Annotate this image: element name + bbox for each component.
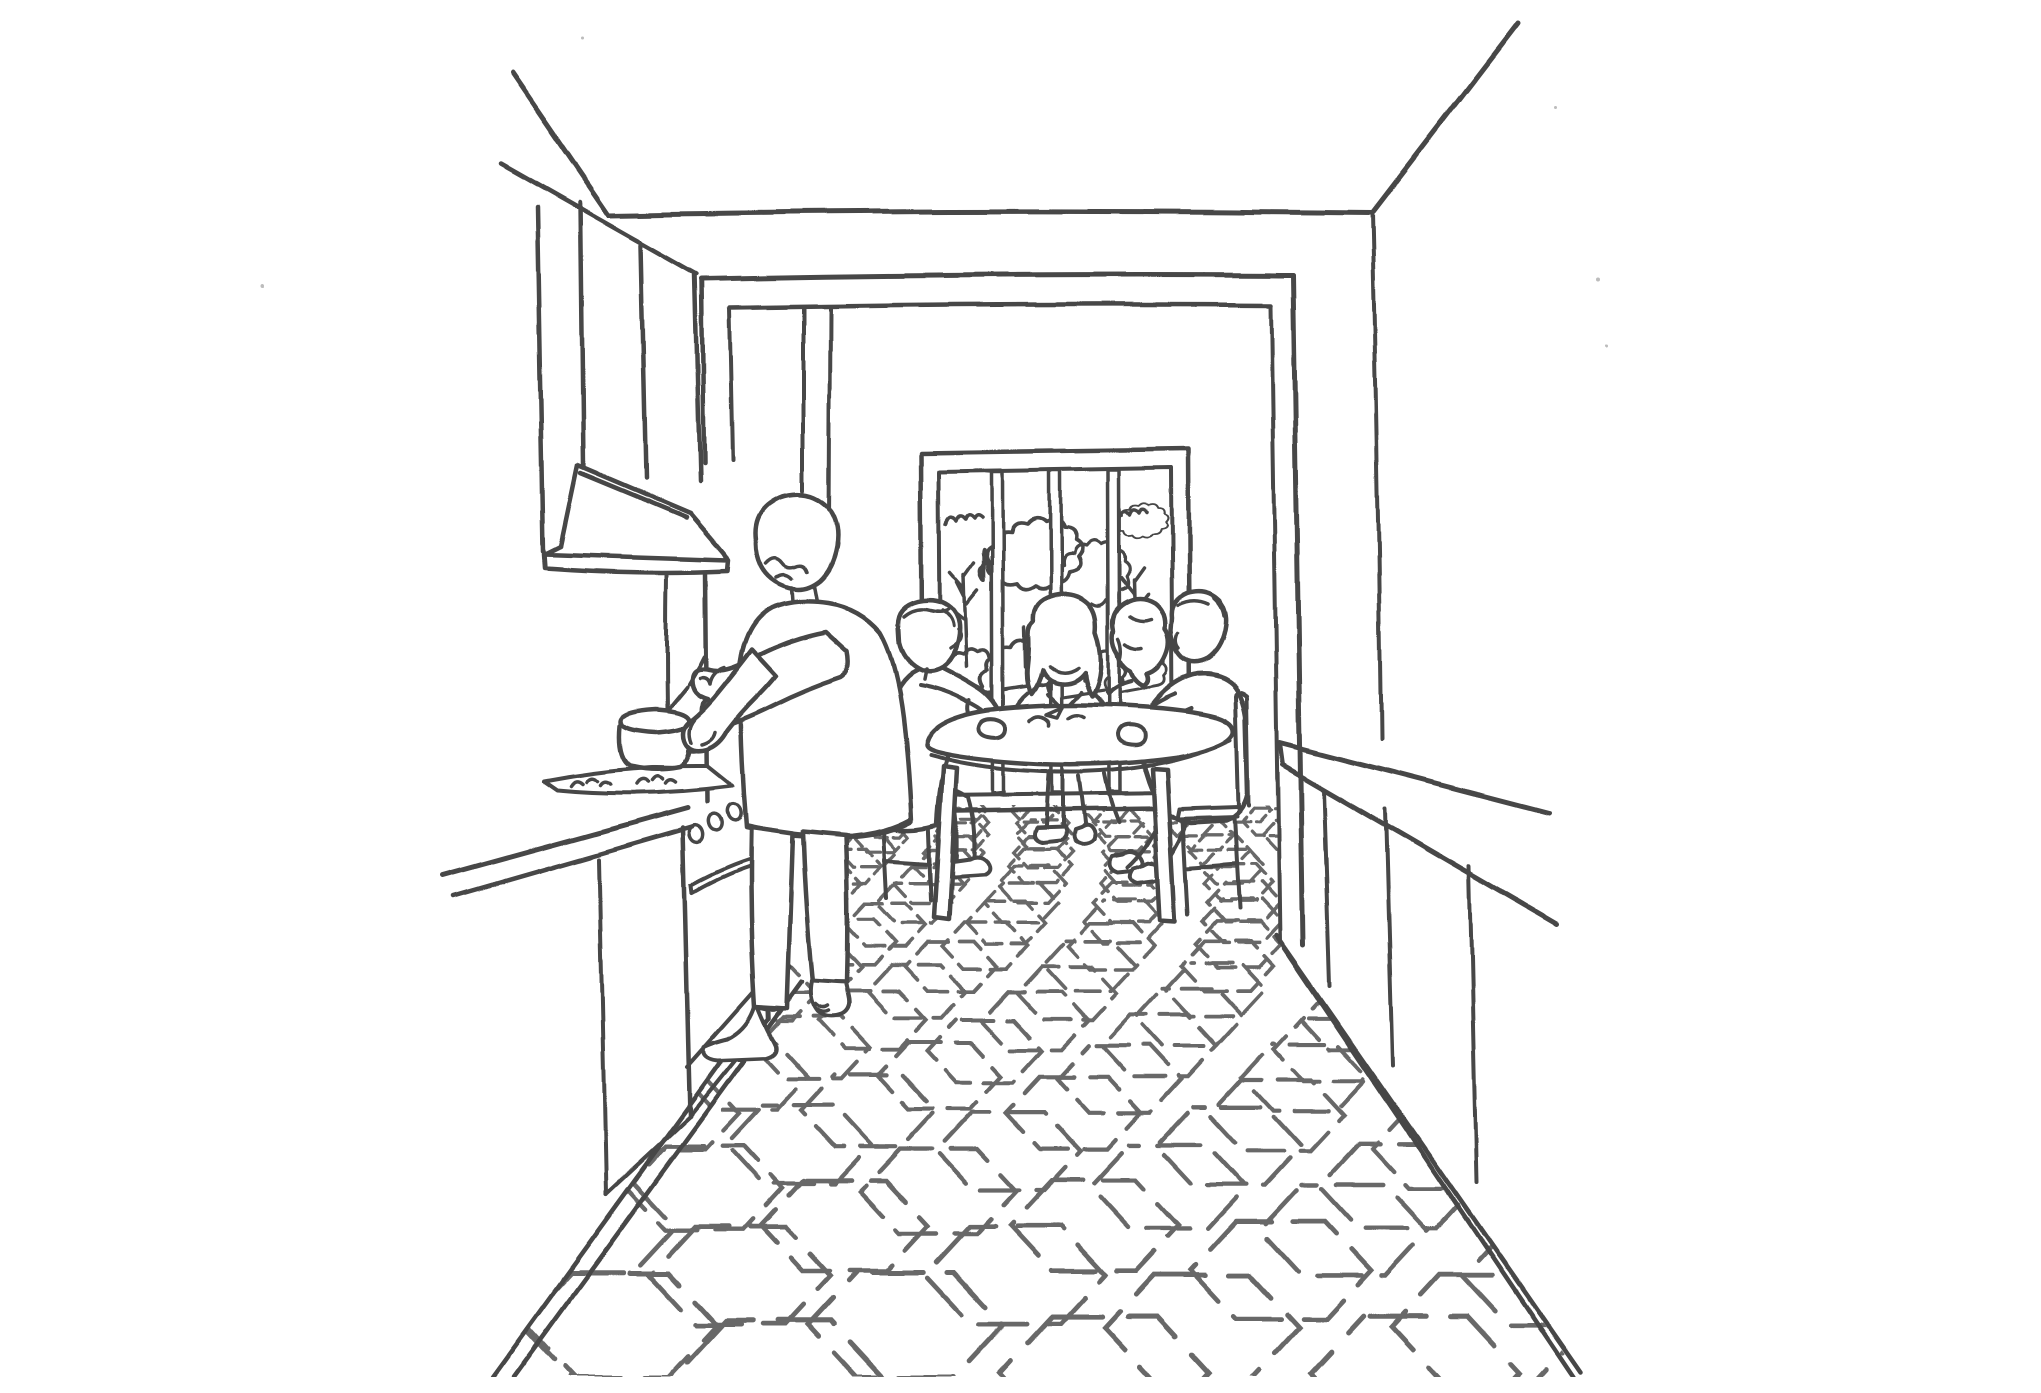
hex-tile [1017, 966, 1116, 1020]
hex-tile [1308, 867, 1376, 904]
hex-tile [1615, 866, 1683, 903]
paper-specks [260, 38, 1608, 349]
counter-right-panel-line [1470, 867, 1477, 1183]
cook-head [756, 494, 838, 590]
ceiling-left-edge [512, 73, 609, 215]
hex-tile [1590, 822, 1645, 852]
hex-tile [1369, 836, 1428, 868]
doorway-left-reveal-b [829, 308, 830, 526]
hex-tile [650, 1227, 830, 1325]
hex-tile [508, 1182, 675, 1272]
cabinet-front-left-edge [580, 202, 583, 465]
hex-tile [1455, 834, 1514, 866]
hex-tile [1575, 797, 1622, 823]
hex-tile [1433, 798, 1480, 823]
hex-tile [605, 1078, 739, 1150]
hex-tile [492, 901, 571, 944]
baseboard-right [1284, 948, 1573, 1377]
hex-tile [611, 900, 690, 943]
hex-tile [582, 1016, 697, 1078]
hex-tile [808, 1273, 1002, 1378]
doorway-inner-left-jamb [730, 308, 733, 461]
hex-tile [1582, 922, 1667, 968]
hex-tile [1578, 850, 1641, 884]
hex-tile [553, 920, 638, 966]
oven-handle [691, 857, 758, 893]
doorway-inner-top [730, 304, 1271, 308]
pot-backing [620, 711, 691, 766]
counter-right-panel-line [1324, 789, 1330, 985]
hex-tile [483, 808, 534, 835]
kitchen-line-drawing [40, 16, 2041, 1377]
hex-tile [497, 990, 604, 1048]
hex-tile [1311, 1317, 1520, 1377]
hex-tile [1623, 808, 1674, 835]
hood-flue-line [667, 575, 668, 712]
hex-tile [1471, 808, 1522, 835]
oven-left-edge [683, 828, 690, 1116]
hex-tile [1544, 836, 1603, 868]
hex-tile [568, 966, 667, 1020]
hex-tile [1516, 1180, 1683, 1271]
right-wall-corner [1372, 213, 1381, 738]
hex-tile [1599, 942, 1691, 992]
hex-tile [1325, 920, 1410, 966]
oven-knob [726, 803, 743, 823]
hex-tile [444, 821, 499, 851]
hex-tile [877, 1042, 1001, 1109]
hex-tile [1617, 992, 1724, 1050]
hex-tile [407, 1075, 541, 1147]
hex-tile [516, 797, 563, 823]
speck [1555, 107, 1558, 110]
hex-tile [1403, 1077, 1537, 1149]
cabinet-door-divider [641, 245, 646, 478]
diner-right-hand [1118, 725, 1145, 745]
hex-tile [1210, 1079, 1344, 1151]
hex-tile [1619, 1014, 1734, 1076]
hex-tile [504, 1046, 628, 1113]
counter-right-end-cap [1280, 743, 1283, 765]
speck [260, 284, 264, 288]
hex-tile [1554, 1143, 1709, 1227]
hex-tile [1587, 1108, 1731, 1186]
diner-center-shoe [1034, 827, 1065, 843]
hex-tile [1391, 1275, 1585, 1377]
hex-tile [420, 964, 519, 1018]
speck [1597, 277, 1601, 281]
doorway-right-jamb-outer [1293, 275, 1303, 945]
oven-knob [688, 824, 705, 844]
doorway-outer-top [702, 275, 1293, 280]
speck [582, 38, 585, 41]
counter-right-panel-line [1386, 809, 1393, 1065]
hex-tile [1483, 849, 1546, 883]
hex-tile [432, 882, 506, 922]
counter-right-top-edge [1280, 743, 1549, 813]
hex-tile [395, 1148, 550, 1232]
cabinet-front-divider [599, 859, 606, 1194]
hex-tile [1508, 821, 1563, 851]
cabinet-side-edge [537, 206, 543, 551]
diner-center-hair [1028, 594, 1102, 696]
ceiling-main-edge [609, 211, 1372, 215]
hex-tile [1612, 964, 1711, 1018]
hex-tile [1321, 941, 1413, 991]
hex-tile [1558, 901, 1637, 944]
cabinet-front-right-edge [695, 274, 700, 481]
hex-tile [1609, 1075, 1743, 1147]
counter-left [442, 777, 802, 1377]
hex-tile [542, 884, 616, 924]
hex-tile [492, 940, 584, 990]
oven-knob [707, 813, 724, 833]
hex-tile [1425, 882, 1499, 922]
hex-tile [1429, 1045, 1553, 1112]
hex-tile [1510, 865, 1578, 902]
hex-tile [447, 797, 494, 823]
hex-tile [1618, 1047, 1742, 1114]
hex-tile [586, 798, 633, 823]
hob [544, 766, 732, 793]
hex-tile [1057, 1046, 1181, 1113]
hex-tile [1442, 901, 1521, 944]
hex-tile [1069, 923, 1154, 969]
hex-tile [1461, 963, 1560, 1017]
counter-right [1276, 743, 1580, 1377]
hex-tile [1547, 810, 1598, 837]
doorway-left-jamb-upper [702, 279, 704, 463]
hex-tile [425, 921, 511, 967]
hex-tile [1633, 836, 1692, 868]
hex-tile [1191, 1222, 1371, 1320]
cook-right-leg [803, 832, 848, 982]
hex-tile [1455, 921, 1540, 967]
hex-tile [532, 850, 595, 884]
cook-left-leg [751, 828, 794, 1008]
hex-tile [1646, 796, 1693, 821]
hex-tile [1424, 822, 1479, 852]
hex-tile [629, 941, 721, 991]
hex-tile [1448, 1019, 1563, 1081]
dining-group [876, 591, 1249, 921]
diner-left-hand [980, 719, 1007, 738]
speck [1605, 346, 1608, 349]
hex-tile [413, 1016, 528, 1078]
diner-center-shoe [1073, 826, 1094, 845]
ceiling-right-edge [1372, 23, 1518, 213]
hex-tile [726, 1106, 870, 1184]
wall-cabinet-top-edge [501, 163, 697, 274]
hex-tile [1280, 837, 1339, 869]
